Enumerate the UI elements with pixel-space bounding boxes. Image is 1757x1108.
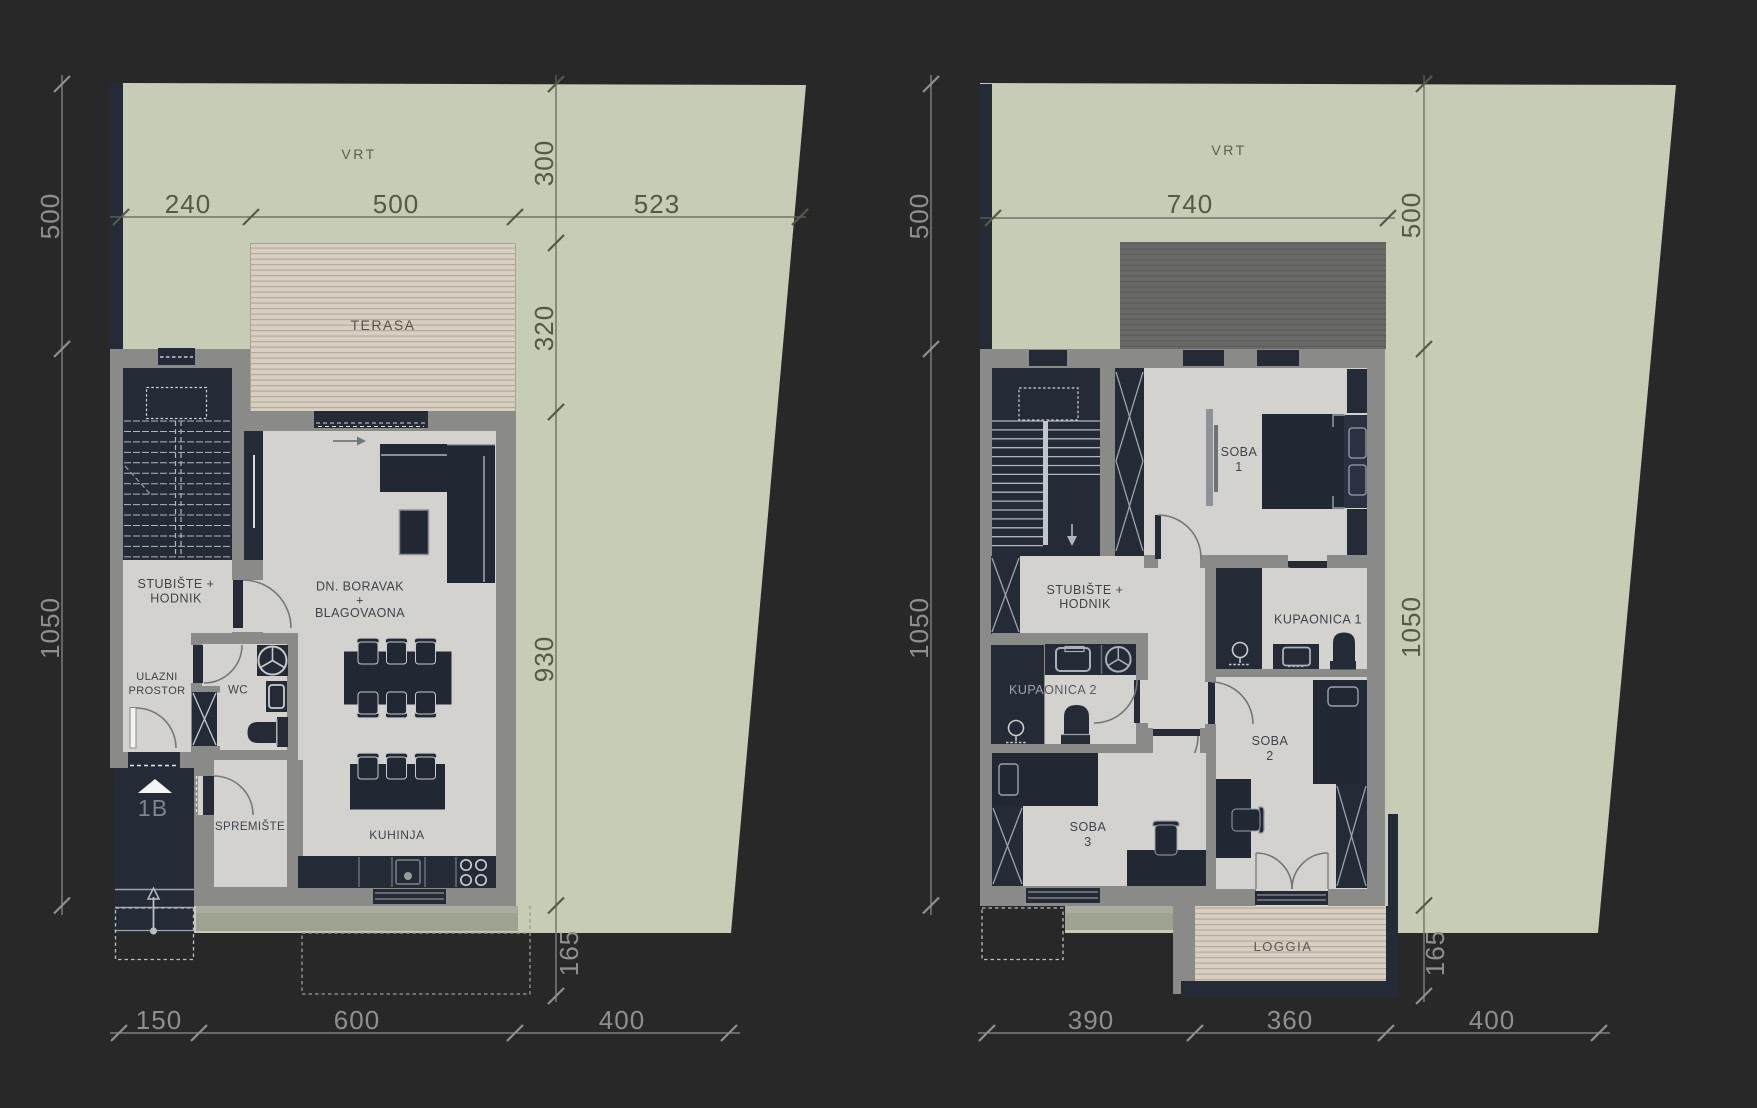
svg-text:SOBA: SOBA [1252,734,1289,748]
svg-text:KUPAONICA 1: KUPAONICA 1 [1274,613,1362,627]
svg-text:1050: 1050 [35,597,65,659]
svg-text:1050: 1050 [904,597,934,659]
svg-text:523: 523 [634,189,680,219]
svg-text:STUBIŠTE +: STUBIŠTE + [138,576,215,591]
svg-text:500: 500 [904,193,934,239]
svg-text:BLAGOVAONA: BLAGOVAONA [315,606,405,620]
svg-text:400: 400 [599,1005,645,1035]
svg-text:500: 500 [35,193,65,239]
svg-text:400: 400 [1469,1005,1515,1035]
svg-text:390: 390 [1068,1005,1114,1035]
svg-text:HODNIK: HODNIK [150,592,202,606]
svg-text:165: 165 [554,930,584,976]
svg-text:STUBIŠTE +: STUBIŠTE + [1047,582,1124,597]
svg-text:VRT: VRT [341,146,376,162]
svg-text:SOBA: SOBA [1070,820,1107,834]
svg-text:DN. BORAVAK: DN. BORAVAK [316,580,404,594]
svg-text:SPREMIŠTE: SPREMIŠTE [215,820,285,833]
svg-text:150: 150 [136,1005,182,1035]
svg-text:VRT: VRT [1211,142,1246,158]
svg-text:TERASA: TERASA [350,317,415,333]
svg-text:320: 320 [529,305,559,351]
svg-text:1: 1 [1235,460,1242,474]
svg-text:300: 300 [529,140,559,186]
svg-text:930: 930 [529,636,559,682]
svg-text:240: 240 [165,189,211,219]
svg-text:PROSTOR: PROSTOR [129,685,186,697]
svg-text:3: 3 [1084,835,1091,849]
svg-text:2: 2 [1266,749,1273,763]
svg-text:KUHINJA: KUHINJA [369,828,425,842]
svg-text:WC: WC [228,685,248,697]
svg-text:LOGGIA: LOGGIA [1254,939,1313,954]
svg-text:500: 500 [373,189,419,219]
svg-text:SOBA: SOBA [1221,445,1258,459]
svg-text:360: 360 [1267,1005,1313,1035]
svg-text:1050: 1050 [1396,596,1426,658]
svg-text:165: 165 [1420,930,1450,976]
svg-text:600: 600 [334,1005,380,1035]
svg-text:ULAZNI: ULAZNI [136,671,178,683]
svg-text:HODNIK: HODNIK [1059,597,1111,611]
svg-text:1B: 1B [138,795,168,821]
svg-text:500: 500 [1396,192,1426,238]
svg-text:740: 740 [1167,189,1213,219]
